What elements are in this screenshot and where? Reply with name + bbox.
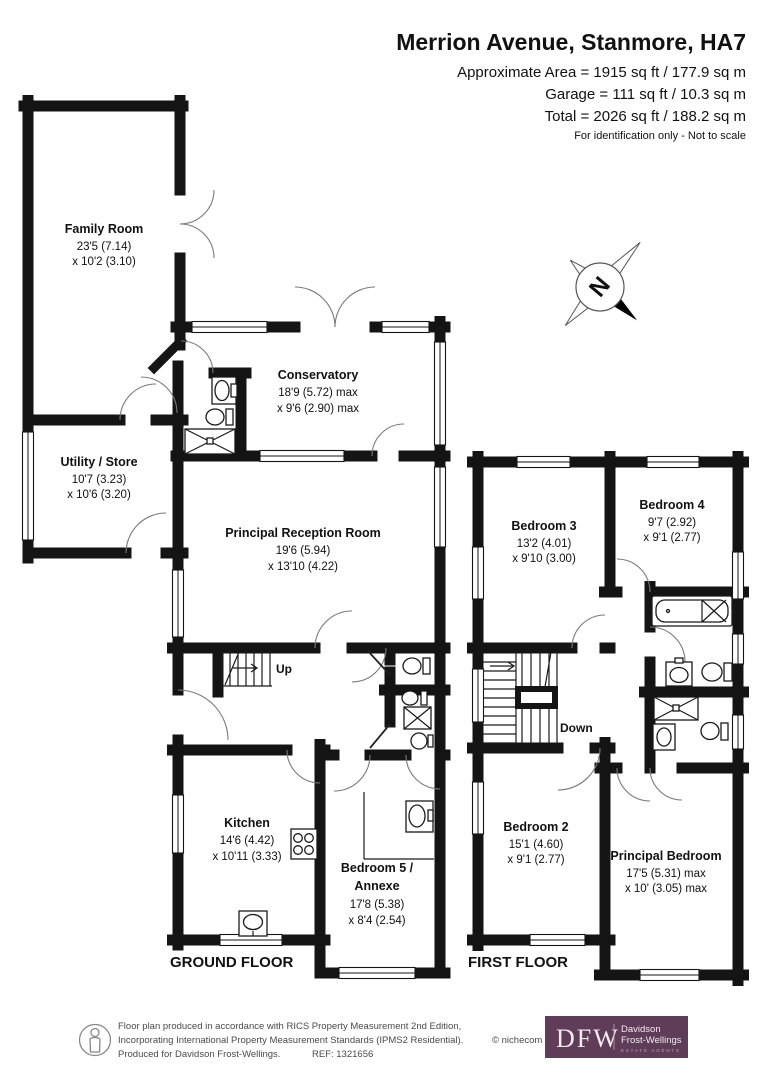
room-dim1-bedroom4: 9'7 (2.92) bbox=[648, 517, 696, 529]
room-dim2-bedroom3: x 9'10 (3.00) bbox=[512, 553, 576, 565]
header: Merrion Avenue, Stanmore, HA7 Approximat… bbox=[396, 29, 746, 142]
footer-ref: REF: 1321656 bbox=[312, 1049, 373, 1060]
dfw-logo-name2: Frost-Wellings bbox=[621, 1035, 682, 1046]
garage-area-line: Garage = 111 sq ft / 10.3 sq m bbox=[545, 86, 746, 103]
room-dim2-principal-bedroom: x 10' (3.05) max bbox=[625, 883, 707, 895]
room-label-kitchen: Kitchen bbox=[224, 816, 270, 830]
page-title: Merrion Avenue, Stanmore, HA7 bbox=[396, 29, 746, 55]
room-dim1-principal-reception: 19'6 (5.94) bbox=[276, 545, 331, 557]
room-label-bedroom2: Bedroom 2 bbox=[503, 820, 568, 834]
toilet-icon bbox=[206, 409, 224, 425]
ground-floor-plan: Up bbox=[23, 101, 446, 979]
dfw-logo-tagline: ESTATE AGENTS bbox=[621, 1048, 681, 1053]
room-label-bedroom3: Bedroom 3 bbox=[511, 519, 576, 533]
ensuite-shower-room bbox=[653, 697, 728, 750]
staircase-down: Down bbox=[483, 652, 593, 744]
staircase-up: Up bbox=[218, 651, 292, 686]
room-dim2-utility-store: x 10'6 (3.20) bbox=[67, 489, 131, 501]
room-dim1-utility-store: 10'7 (3.23) bbox=[72, 474, 127, 486]
room-dim1-bedroom2: 15'1 (4.60) bbox=[509, 839, 564, 851]
ground-wc bbox=[403, 658, 430, 674]
room-dim2-bedroom2: x 9'1 (2.77) bbox=[507, 854, 564, 866]
shower-room-a bbox=[185, 377, 237, 454]
toilet-icon bbox=[701, 723, 719, 740]
footer-line2: Incorporating International Property Mea… bbox=[118, 1035, 463, 1046]
total-area-line: Total = 2026 sq ft / 188.2 sq m bbox=[545, 108, 746, 125]
shower-room-b bbox=[402, 691, 433, 749]
room-dim2-bedroom4: x 9'1 (2.77) bbox=[643, 532, 700, 544]
dfw-logo-initials: DFW bbox=[556, 1024, 620, 1053]
stairs-down-label: Down bbox=[560, 721, 593, 735]
sink-icon bbox=[411, 733, 427, 749]
toilet-icon bbox=[402, 691, 418, 705]
room-dim2-family-room: x 10'2 (3.10) bbox=[72, 256, 136, 268]
room-label-principal-bedroom: Principal Bedroom bbox=[610, 849, 721, 863]
room-label-bedroom5-line2: Annexe bbox=[354, 879, 399, 893]
room-dim1-conservatory: 18'9 (5.72) max bbox=[278, 387, 358, 399]
first-floor-plan: Down bbox=[468, 457, 744, 981]
room-dim1-principal-bedroom: 17'5 (5.31) max bbox=[626, 868, 706, 880]
room-label-conservatory: Conservatory bbox=[278, 368, 359, 382]
toilet-icon bbox=[702, 663, 722, 681]
floorplan-canvas: Merrion Avenue, Stanmore, HA7 Approximat… bbox=[0, 0, 764, 1080]
person-icon bbox=[80, 1025, 111, 1056]
room-dim1-family-room: 23'5 (7.14) bbox=[77, 241, 132, 253]
room-dim2-conservatory: x 9'6 (2.90) max bbox=[277, 403, 359, 415]
first-floor-fixtures bbox=[652, 596, 732, 750]
footer-line3: Produced for Davidson Frost-Wellings. bbox=[118, 1049, 280, 1060]
room-dim2-principal-reception: x 13'10 (4.22) bbox=[268, 561, 338, 573]
floorplan-page: Merrion Avenue, Stanmore, HA7 Approximat… bbox=[0, 0, 764, 1080]
first-floor-label: FIRST FLOOR bbox=[468, 954, 568, 971]
dfw-logo: DFW Davidson Frost-Wellings ESTATE AGENT… bbox=[545, 1016, 688, 1058]
room-dim1-kitchen: 14'6 (4.42) bbox=[220, 835, 275, 847]
room-dim1-bedroom5: 17'8 (5.38) bbox=[350, 899, 405, 911]
compass-icon: N bbox=[535, 216, 677, 359]
footer: Floor plan produced in accordance with R… bbox=[80, 1016, 689, 1060]
room-label-bedroom5-line1: Bedroom 5 / bbox=[341, 861, 414, 875]
approx-area-line: Approximate Area = 1915 sq ft / 177.9 sq… bbox=[457, 64, 746, 81]
stairs-up-label: Up bbox=[276, 662, 292, 676]
footer-line1: Floor plan produced in accordance with R… bbox=[118, 1021, 461, 1032]
room-label-utility-store: Utility / Store bbox=[60, 455, 137, 469]
first-floor-walls bbox=[473, 457, 744, 981]
room-label-bedroom4: Bedroom 4 bbox=[639, 498, 704, 512]
room-label-family-room: Family Room bbox=[65, 222, 144, 236]
identification-note: For identification only - Not to scale bbox=[574, 130, 746, 142]
hob-icon bbox=[291, 829, 317, 859]
room-dim1-bedroom3: 13'2 (4.01) bbox=[517, 538, 572, 550]
ground-floor-label: GROUND FLOOR bbox=[170, 954, 293, 971]
room-dim2-kitchen: x 10'11 (3.33) bbox=[212, 851, 281, 863]
dfw-logo-name1: Davidson bbox=[621, 1024, 661, 1035]
ground-floor-labels: Family Room 23'5 (7.14) x 10'2 (3.10) Co… bbox=[60, 222, 413, 971]
family-bathroom bbox=[652, 596, 732, 686]
toilet-icon bbox=[403, 658, 421, 674]
room-label-principal-reception: Principal Reception Room bbox=[225, 526, 381, 540]
room-dim2-bedroom5: x 8'4 (2.54) bbox=[348, 915, 405, 927]
annexe-fixtures bbox=[364, 792, 434, 859]
